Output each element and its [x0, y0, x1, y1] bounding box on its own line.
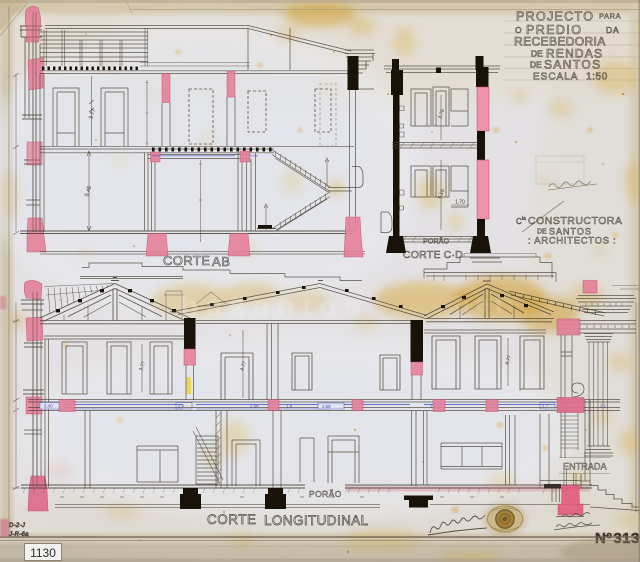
svg-text:PORÃO: PORÃO: [423, 237, 450, 246]
svg-text:DA: DA: [606, 25, 619, 35]
svg-text:2.68: 2.68: [250, 404, 259, 409]
svg-text:SANTOS: SANTOS: [544, 58, 602, 72]
svg-text:1.9: 1.9: [286, 404, 293, 409]
svg-text:ia: ia: [522, 216, 526, 222]
svg-text:1.7: 1.7: [542, 404, 549, 409]
svg-text:1:50: 1:50: [586, 72, 608, 83]
svg-text:CORTE: CORTE: [207, 512, 257, 527]
svg-text:basantos: basantos: [180, 290, 368, 323]
svg-text:2.68: 2.68: [322, 404, 331, 409]
svg-text:CORTE C·D: CORTE C·D: [403, 249, 463, 261]
svg-text:ESCALA: ESCALA: [533, 72, 578, 83]
svg-text:AB: AB: [212, 254, 231, 269]
svg-text:DE: DE: [531, 49, 543, 59]
svg-text:DE: DE: [537, 229, 547, 236]
svg-text:CONSTRUCTORA: CONSTRUCTORA: [528, 215, 622, 227]
svg-text:LONGITUDINAL: LONGITUDINAL: [264, 513, 369, 528]
svg-text:1.70: 1.70: [455, 200, 465, 206]
svg-text:CORTE: CORTE: [163, 253, 210, 268]
svg-text:O: O: [515, 25, 522, 35]
svg-text:PROJECTO: PROJECTO: [516, 10, 594, 24]
svg-text:D-2-J: D-2-J: [9, 523, 26, 529]
svg-text:: ARCHITECTOS :: : ARCHITECTOS :: [528, 236, 616, 247]
svg-text:net: net: [455, 291, 509, 318]
svg-text:DE: DE: [530, 60, 542, 70]
svg-text:PORÃO: PORÃO: [309, 489, 342, 499]
svg-text:2.1: 2.1: [600, 404, 607, 409]
svg-text:5.40: 5.40: [44, 404, 53, 409]
svg-text:PARA: PARA: [599, 12, 621, 21]
svg-text:2.0: 2.0: [178, 404, 185, 409]
svg-text:1130: 1130: [30, 546, 56, 560]
